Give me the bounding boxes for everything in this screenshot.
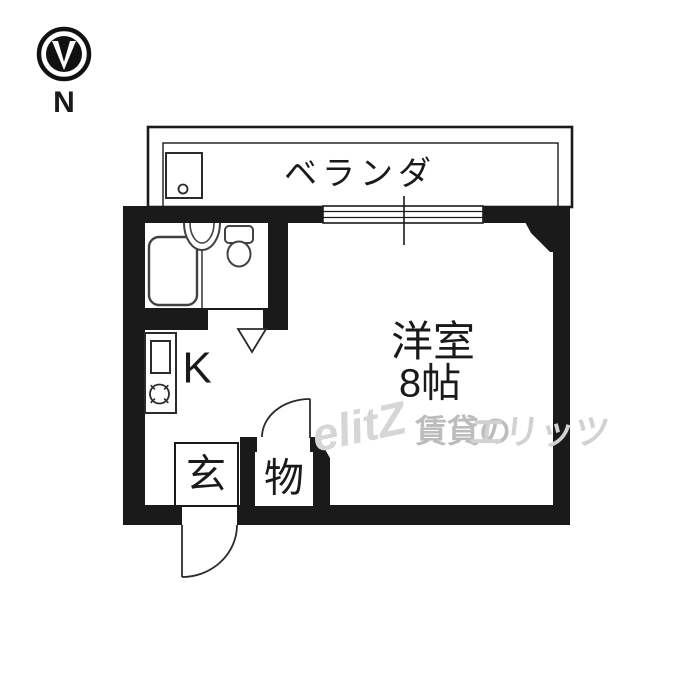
watermark-brand-name: エリッツ [467, 413, 611, 452]
kitchen-section: K [145, 333, 212, 413]
drain-icon [179, 185, 188, 194]
floorplan-drawing: N ベランダ [0, 0, 700, 700]
balcony-label: ベランダ [284, 155, 436, 192]
watermark-logo: elitZ [307, 391, 412, 462]
storage-door-arc-icon [262, 399, 310, 437]
kitchen-sink-icon [151, 341, 170, 373]
bathroom-door-opening [208, 310, 263, 330]
toilet-tank-icon [225, 226, 253, 243]
entrance-door-opening [182, 505, 237, 525]
entrance-door-arc-icon [182, 525, 237, 577]
storage-door-opening [257, 437, 310, 453]
storage-label: 物 [264, 457, 304, 501]
wall-right [553, 206, 570, 525]
main-room-section: 洋室 8帖 [391, 318, 475, 405]
north-compass-icon: N [39, 29, 89, 119]
main-room-label: 洋室 [391, 318, 475, 365]
entrance-label: 玄 [186, 453, 226, 497]
kitchen-label: K [182, 344, 211, 393]
balcony-section: ベランダ [148, 127, 572, 207]
wall-bathroom-bottom [123, 308, 288, 330]
wall-left [123, 206, 145, 525]
floorplan-page: N ベランダ [0, 0, 700, 700]
bathtub-icon [149, 237, 197, 305]
stove-burner-icon [150, 385, 169, 404]
sliding-window-icon [323, 206, 483, 223]
toilet-bowl-icon [228, 242, 251, 267]
bathroom-door-triangle-icon [238, 329, 266, 352]
compass-north-label: N [53, 86, 75, 119]
main-room-size: 8帖 [399, 362, 461, 406]
